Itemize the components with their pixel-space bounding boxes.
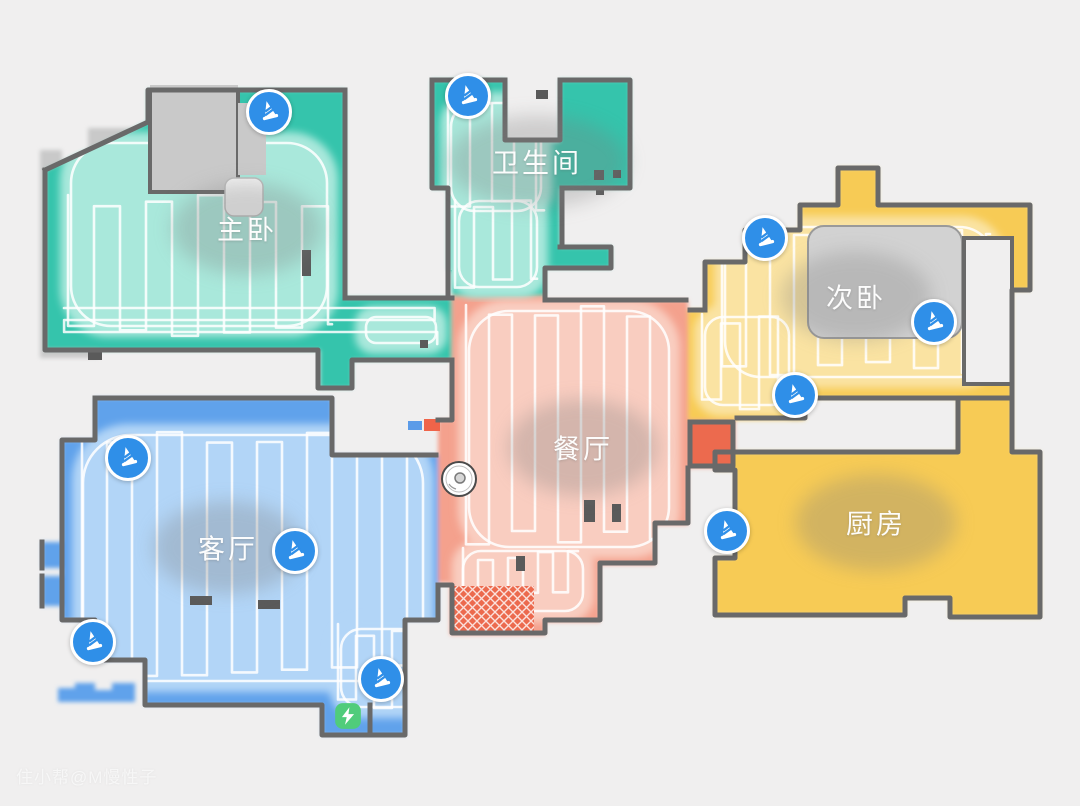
obstacle-cone-marker[interactable] (272, 528, 318, 574)
obstacle-cone-marker[interactable] (911, 299, 957, 345)
obstacle-cone-marker[interactable] (445, 73, 491, 119)
traffic-cone-icon (455, 81, 481, 112)
obstacle-cone-marker[interactable] (772, 372, 818, 418)
map-overlay: 住小帮@M慢性子 主卧卫生间餐厅次卧厨房客厅 (0, 0, 1080, 806)
room-label-master_bedroom: 主卧 (217, 209, 277, 248)
room-label-text: 主卧 (217, 209, 277, 248)
obstacle-cone-marker[interactable] (358, 656, 404, 702)
room-label-text: 卫生间 (492, 142, 582, 181)
traffic-cone-icon (282, 536, 308, 567)
traffic-cone-icon (115, 443, 141, 474)
traffic-cone-icon (80, 627, 106, 658)
traffic-cone-icon (368, 664, 394, 695)
obstacle-cone-marker[interactable] (704, 508, 750, 554)
room-label-living_room: 客厅 (198, 528, 258, 567)
charging-dock-icon (334, 702, 362, 730)
vacuum-map-stage[interactable]: 住小帮@M慢性子 主卧卫生间餐厅次卧厨房客厅 (0, 0, 1080, 806)
traffic-cone-icon (921, 307, 947, 338)
room-label-backdrop (508, 399, 658, 495)
obstacle-cone-marker[interactable] (105, 435, 151, 481)
room-label-dining_room: 餐厅 (553, 428, 613, 467)
room-label-bathroom: 卫生间 (492, 142, 582, 181)
room-label-text: 厨房 (846, 503, 906, 542)
room-label-text: 客厅 (198, 528, 258, 567)
charging-dock[interactable] (334, 702, 362, 730)
room-label-backdrop (796, 474, 956, 570)
room-label-text: 餐厅 (553, 428, 613, 467)
traffic-cone-icon (782, 380, 808, 411)
room-label-second_bedroom: 次卧 (826, 277, 886, 316)
robot-vacuum-icon (439, 459, 479, 499)
room-label-text: 次卧 (826, 277, 886, 316)
traffic-cone-icon (714, 516, 740, 547)
room-label-kitchen: 厨房 (846, 503, 906, 542)
room-label-backdrop (781, 251, 931, 341)
room-label-backdrop (172, 182, 322, 274)
traffic-cone-icon (752, 223, 778, 254)
obstacle-cone-marker[interactable] (70, 619, 116, 665)
robot-vacuum[interactable] (439, 459, 479, 499)
room-label-backdrop (447, 115, 627, 207)
traffic-cone-icon (256, 97, 282, 128)
obstacle-cone-marker[interactable] (742, 215, 788, 261)
obstacle-cone-marker[interactable] (246, 89, 292, 135)
watermark: 住小帮@M慢性子 (16, 763, 157, 788)
